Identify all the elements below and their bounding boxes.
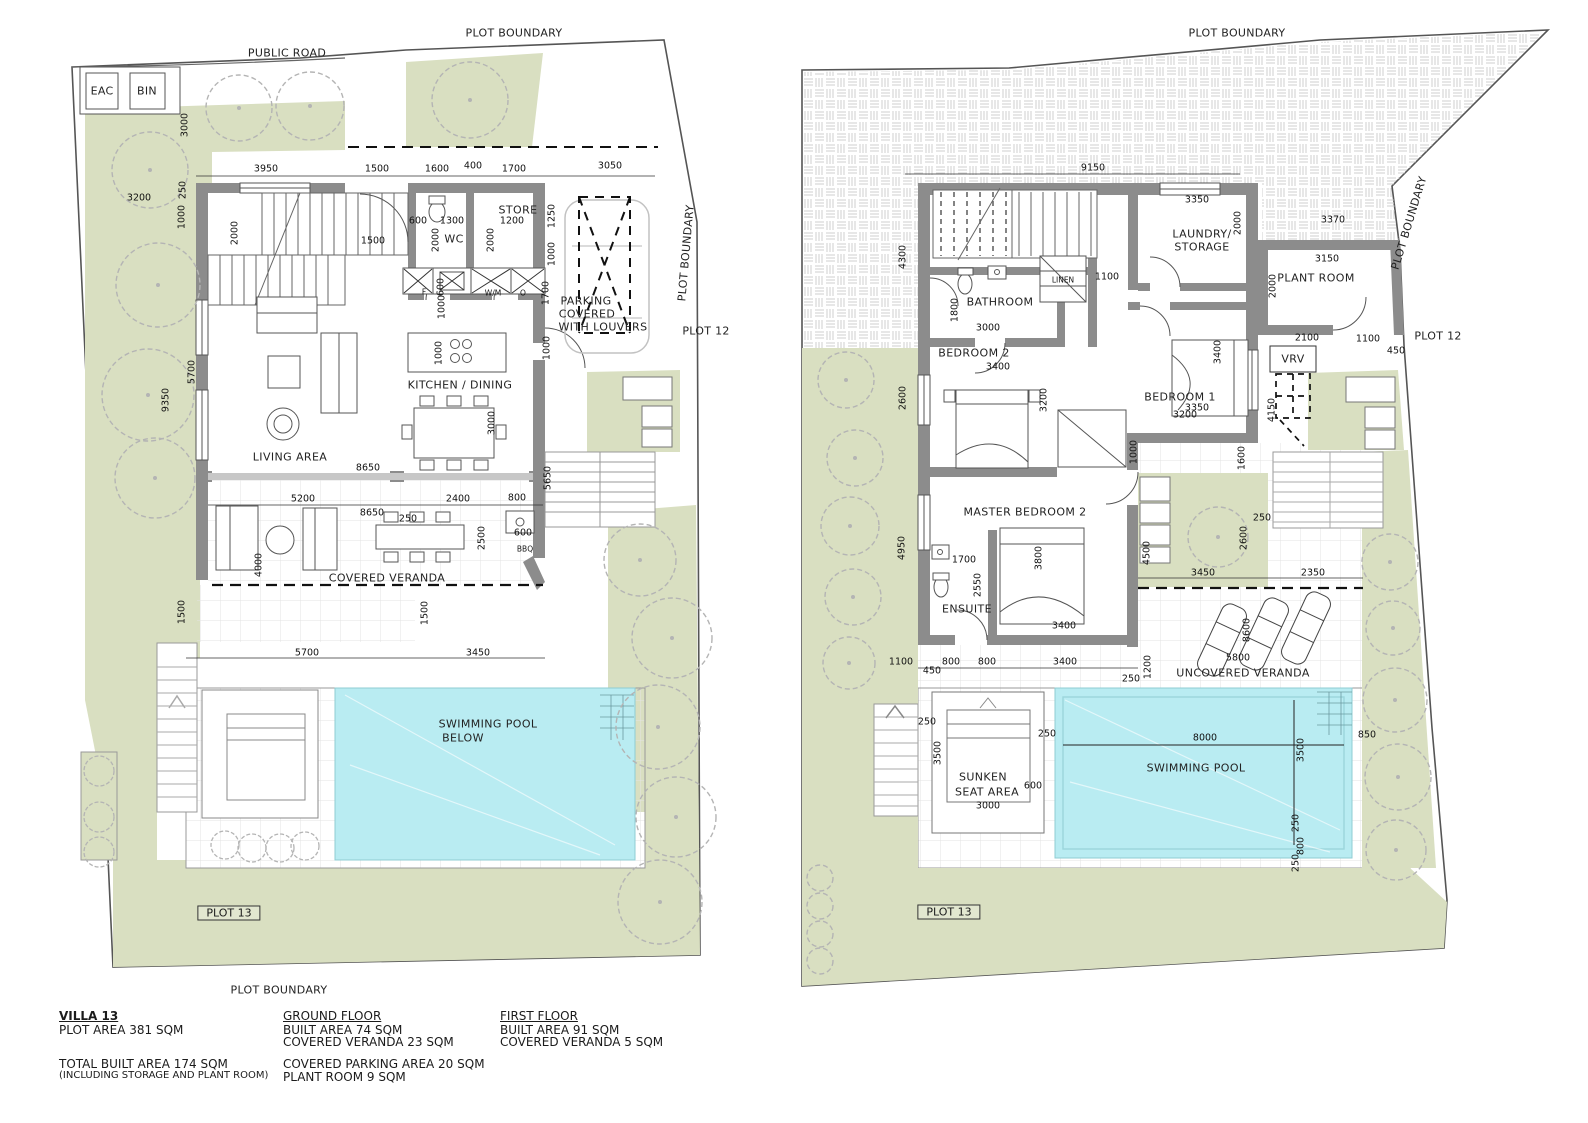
annotation-overlay: PUBLIC ROADPLOT BOUNDARYPLOT BOUNDARYPLO…	[0, 0, 1588, 1123]
plot-label: BIN	[137, 86, 157, 97]
dim-label: 2000	[1268, 274, 1278, 298]
dim-label: 2100	[1295, 333, 1319, 343]
dim-label: 1300	[440, 216, 464, 226]
plot-tag: PLOT 13	[197, 906, 260, 921]
room-label: ENSUITE	[942, 604, 992, 615]
annotation-label: BBQ	[517, 545, 533, 553]
dim-label: 3800	[1034, 546, 1044, 570]
dim-label: 250	[1038, 729, 1056, 739]
total-built-area: TOTAL BUILT AREA 174 SQM	[59, 1057, 228, 1071]
dim-label: 1250	[547, 204, 557, 228]
dim-label: 1000	[437, 295, 447, 319]
dim-label: 3950	[254, 164, 278, 174]
dim-label: 1800	[950, 298, 960, 322]
dim-label: 4000	[254, 553, 264, 577]
plot-label: PLOT 12	[1414, 331, 1461, 342]
dim-label: 5700	[187, 360, 197, 384]
dim-label: 5200	[291, 494, 315, 504]
room-label: PARKING	[560, 296, 611, 307]
dim-label: 1100	[889, 657, 913, 667]
villa-title: VILLA 13	[59, 1009, 118, 1023]
plot-label: PLOT BOUNDARY	[1390, 175, 1429, 271]
dim-label: 9150	[1081, 163, 1105, 173]
dim-label: 1700	[502, 164, 526, 174]
room-label: BATHROOM	[967, 297, 1034, 308]
dim-label: 3000	[487, 411, 497, 435]
plot-label: PLOT BOUNDARY	[676, 204, 695, 301]
dim-label: 600	[409, 216, 427, 226]
room-label: STORE	[499, 205, 538, 216]
dim-label: 8000	[1193, 733, 1217, 743]
dim-label: 3350	[1185, 195, 1209, 205]
dim-label: 3500	[1296, 738, 1306, 762]
dim-label: 250	[178, 181, 188, 199]
dim-label: 600	[514, 528, 532, 538]
dim-label: 8600	[1242, 618, 1252, 642]
dim-label: 1000	[177, 205, 187, 229]
annotation-label: W/M	[485, 289, 501, 297]
room-label: BEDROOM 1	[1144, 392, 1216, 403]
dim-label: 2550	[973, 573, 983, 597]
dim-label: 3000	[180, 113, 190, 137]
dim-label: 3000	[976, 801, 1000, 811]
dim-label: 3400	[1053, 657, 1077, 667]
dim-label: 4950	[897, 536, 907, 560]
room-label: KITCHEN / DINING	[408, 380, 513, 391]
dim-label: 1000	[547, 242, 557, 266]
room-label: MASTER BEDROOM 2	[963, 507, 1086, 518]
annotation-label: O	[520, 289, 526, 297]
gf-covered-veranda: COVERED VERANDA 23 SQM	[283, 1035, 454, 1049]
plot-label: PLOT BOUNDARY	[231, 985, 328, 996]
room-label: LAUNDRY/	[1172, 229, 1231, 240]
dim-label: 3370	[1321, 215, 1345, 225]
room-label: LIVING AREA	[253, 452, 327, 463]
dim-label: 3450	[1191, 568, 1215, 578]
dim-label: 3050	[598, 161, 622, 171]
room-label: VRV	[1281, 354, 1304, 365]
plot-label: PLOT BOUNDARY	[1189, 28, 1286, 39]
dim-label: 1600	[1237, 446, 1247, 470]
room-label: SWIMMING POOL	[439, 719, 538, 730]
plot-label: PLOT BOUNDARY	[466, 28, 563, 39]
dim-label: 1000	[542, 336, 552, 360]
room-label: PLANT ROOM	[1277, 273, 1354, 284]
room-label: SWIMMING POOL	[1147, 763, 1246, 774]
room-label: COVERED VERANDA	[329, 573, 445, 584]
dim-label: 3200	[127, 193, 151, 203]
room-label: BEDROOM 2	[938, 348, 1010, 359]
room-label: UNCOVERED VERANDA	[1176, 668, 1310, 679]
dim-label: 3200	[1173, 410, 1197, 420]
dim-label: 5650	[543, 466, 553, 490]
annotation-label: F	[422, 288, 426, 296]
dim-label: 450	[923, 666, 941, 676]
first-floor-title: FIRST FLOOR	[500, 1009, 578, 1023]
dim-label: 1100	[1356, 334, 1380, 344]
dim-label: 9350	[161, 388, 171, 412]
dim-label: 850	[1358, 730, 1376, 740]
dim-label: 3200	[1039, 388, 1049, 412]
dim-label: 1700	[541, 281, 551, 305]
dim-label: 800	[942, 657, 960, 667]
dim-label: 2600	[898, 386, 908, 410]
plot-label: EAC	[91, 86, 114, 97]
dim-label: 8650	[360, 508, 384, 518]
room-label: WC	[444, 234, 463, 245]
dim-label: 250	[918, 717, 936, 727]
dim-label: 250	[1291, 854, 1301, 872]
room-label: BELOW	[442, 733, 484, 744]
dim-label: 1200	[1143, 655, 1153, 679]
dim-label: 2400	[446, 494, 470, 504]
dim-label: 1000	[434, 341, 444, 365]
dim-label: 600	[1024, 781, 1042, 791]
dim-label: 2000	[230, 221, 240, 245]
dim-label: 3400	[986, 362, 1010, 372]
dim-label: 800	[978, 657, 996, 667]
dim-label: 3400	[1052, 621, 1076, 631]
room-label: SUNKEN	[959, 772, 1007, 783]
plot-tag: PLOT 13	[917, 905, 980, 920]
dim-label: 3450	[466, 648, 490, 658]
dim-label: 250	[1253, 513, 1271, 523]
dim-label: 3000	[976, 323, 1000, 333]
dim-label: 3150	[1315, 254, 1339, 264]
dim-label: 400	[464, 161, 482, 171]
dim-label: 1600	[425, 164, 449, 174]
dim-label: 4500	[1142, 541, 1152, 565]
dim-label: 1000	[1129, 440, 1139, 464]
dim-label: 3500	[933, 741, 943, 765]
room-label: STORAGE	[1174, 242, 1229, 253]
dim-label: 5700	[295, 648, 319, 658]
room-label: COVERED	[559, 309, 615, 320]
dim-label: 2000	[486, 228, 496, 252]
dim-label: 250	[399, 514, 417, 524]
dim-label: 2000	[431, 228, 441, 252]
dim-label: 2000	[1233, 211, 1243, 235]
dim-label: 1500	[365, 164, 389, 174]
gf-covered-parking: COVERED PARKING AREA 20 SQM	[283, 1057, 485, 1071]
dim-label: 5800	[1226, 653, 1250, 663]
ground-floor-title: GROUND FLOOR	[283, 1009, 381, 1023]
annotation-label: LINEN	[1052, 276, 1074, 284]
dim-label: 1500	[177, 600, 187, 624]
plot-label: PUBLIC ROAD	[248, 48, 326, 59]
plot-area: PLOT AREA 381 SQM	[59, 1023, 183, 1037]
plot-label: PLOT 12	[682, 326, 729, 337]
dim-label: 800	[1296, 837, 1306, 855]
dim-label: 250	[1122, 674, 1140, 684]
dim-label: 1500	[420, 601, 430, 625]
ff-covered-veranda: COVERED VERANDA 5 SQM	[500, 1035, 663, 1049]
dim-label: 3400	[1213, 340, 1223, 364]
dim-label: 2500	[477, 526, 487, 550]
dim-label: 8650	[356, 463, 380, 473]
dim-label: 600	[436, 278, 446, 296]
dim-label: 1700	[952, 555, 976, 565]
dim-label: 1500	[361, 236, 385, 246]
dim-label: 250	[1291, 814, 1301, 832]
dim-label: 450	[1387, 346, 1405, 356]
room-label: WITH LOUVERS	[559, 322, 648, 333]
dim-label: 800	[508, 493, 526, 503]
room-label: SEAT AREA	[955, 787, 1019, 798]
total-note: (INCLUDING STORAGE AND PLANT ROOM)	[59, 1070, 268, 1081]
dim-label: 4300	[898, 245, 908, 269]
gf-plant-room: PLANT ROOM 9 SQM	[283, 1070, 406, 1084]
dim-label: 2600	[1239, 526, 1249, 550]
dim-label: 4150	[1267, 398, 1277, 422]
dim-label: 1200	[500, 216, 524, 226]
dim-label: 2350	[1301, 568, 1325, 578]
dim-label: 1100	[1095, 272, 1119, 282]
